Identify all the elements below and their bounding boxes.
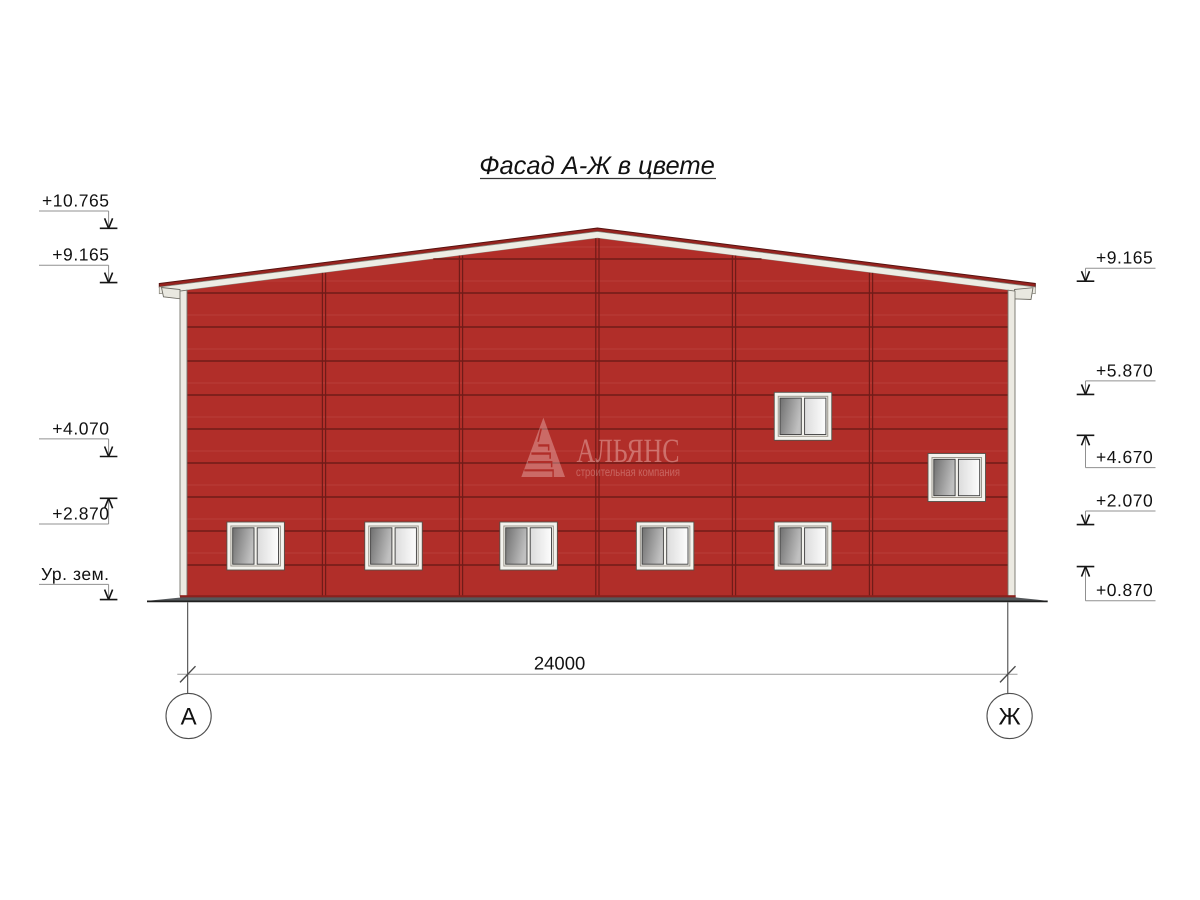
svg-text:+4.070: +4.070 [52,418,109,438]
svg-text:+4.670: +4.670 [1096,447,1153,467]
svg-text:+9.165: +9.165 [1096,248,1153,268]
svg-text:+10.765: +10.765 [42,191,110,211]
svg-text:+5.870: +5.870 [1096,360,1153,380]
svg-text:Ж: Ж [999,704,1021,731]
svg-text:А: А [181,704,197,731]
svg-text:Фасад А-Ж в цвете: Фасад А-Ж в цвете [479,152,715,180]
svg-text:+2.870: +2.870 [52,504,109,524]
svg-text:+2.070: +2.070 [1096,491,1153,511]
svg-text:24000: 24000 [534,652,585,673]
svg-text:+9.165: +9.165 [52,245,109,265]
svg-text:Ур. зем.: Ур. зем. [41,564,110,584]
svg-text:+0.870: +0.870 [1096,580,1153,600]
svg-text:строительная компания: строительная компания [576,465,680,479]
